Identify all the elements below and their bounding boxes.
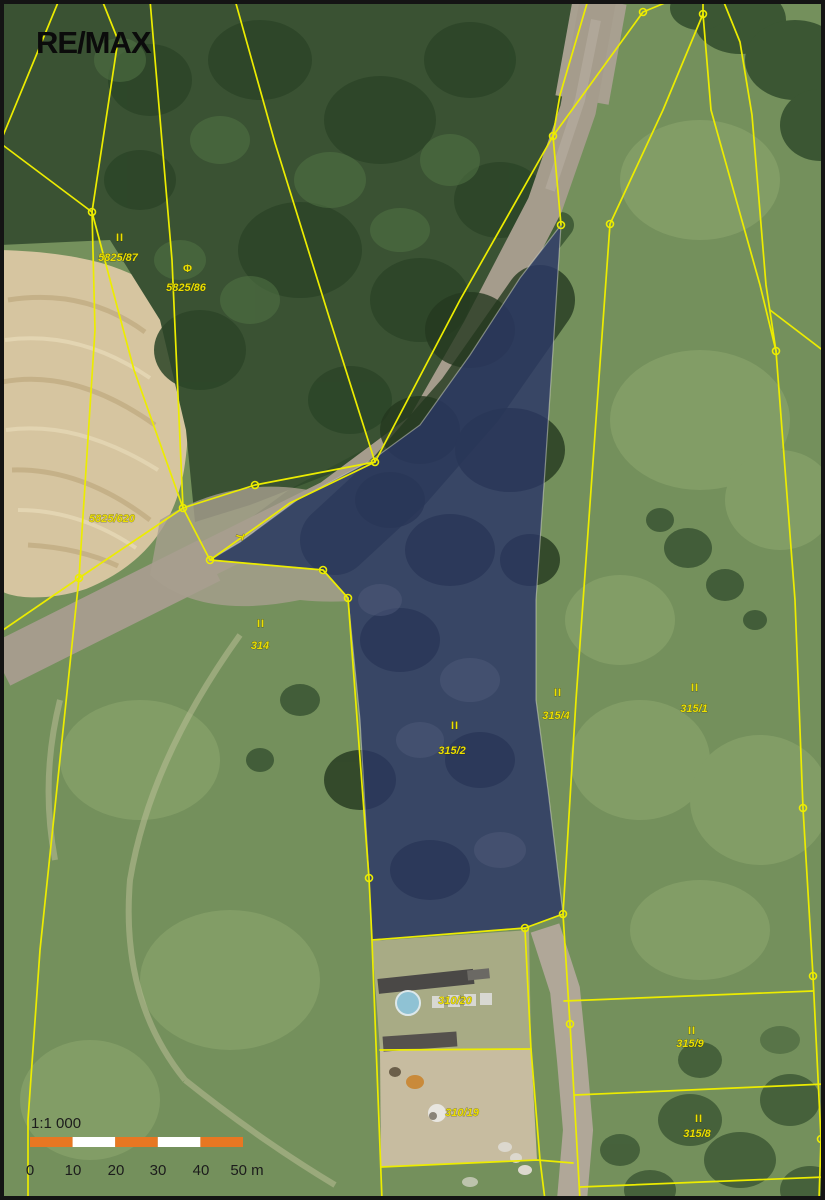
parcel-label: 310/20: [438, 995, 473, 1007]
scale-tick: 40: [193, 1162, 210, 1179]
parcel-label: 310/19: [445, 1107, 480, 1119]
parcel-label: 315/4: [542, 710, 570, 722]
parcel-label: 315/8: [683, 1128, 711, 1140]
landuse-symbol: Φ: [183, 263, 193, 275]
landuse-symbol: II: [695, 1113, 703, 1125]
landuse-symbol: II: [691, 682, 699, 694]
parcel-label: 5825/86: [166, 282, 207, 294]
parcel-label: 315/9: [676, 1038, 704, 1050]
parcel-label: 5825/620: [89, 513, 136, 525]
landuse-symbol: II: [554, 687, 562, 699]
parcel-label: 315/1: [680, 703, 708, 715]
aerial-map: II 5825/87 Φ 5825/86 5825/620 II 314 II …: [0, 0, 825, 1200]
map-canvas: II 5825/87 Φ 5825/86 5825/620 II 314 II …: [0, 0, 825, 1200]
remax-logo: RE/MAX: [36, 25, 152, 60]
scale-ratio: 1:1 000: [31, 1115, 81, 1132]
scale-tick: 50 m: [230, 1162, 263, 1179]
scale-tick: 20: [108, 1162, 125, 1179]
landuse-symbol: II: [451, 720, 459, 732]
swimming-pool: [396, 991, 420, 1015]
parcel-label: 314: [251, 640, 269, 652]
homestead: [372, 930, 537, 1187]
scale-tick: 0: [26, 1162, 34, 1179]
parcel-label: 5825/87: [98, 252, 139, 264]
scale-tick: 10: [65, 1162, 82, 1179]
scale-tick: 30: [150, 1162, 167, 1179]
parcel-label-highlighted: 315/2: [438, 745, 466, 757]
landuse-symbol: II: [116, 232, 124, 244]
landuse-symbol: II: [688, 1025, 696, 1037]
scale-bar-segments: [30, 1137, 243, 1147]
landuse-symbol: II: [257, 618, 265, 630]
